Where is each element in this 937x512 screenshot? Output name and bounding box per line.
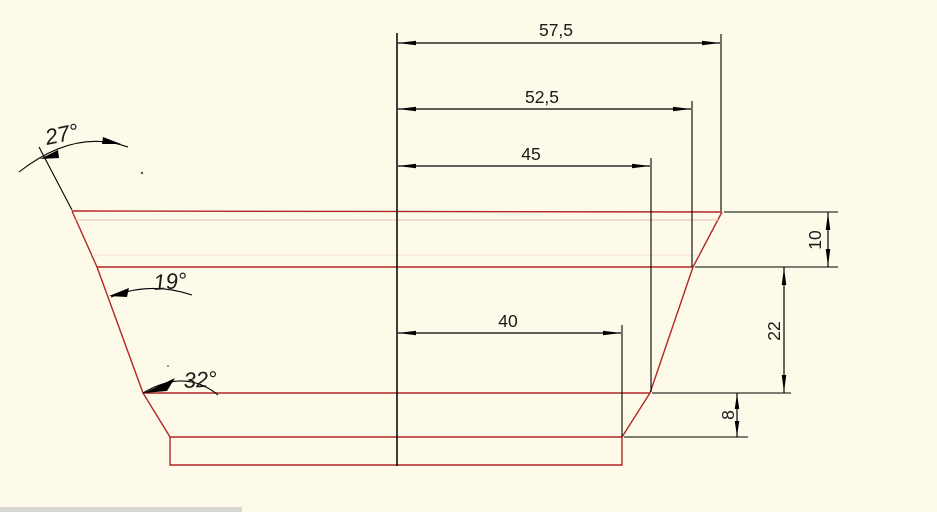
dim-label-52-5: 52,5	[525, 87, 559, 107]
dim-label-40: 40	[498, 311, 518, 331]
cad-drawing-canvas: 57,5 52,5 45 40 10 22	[0, 0, 937, 512]
dim-label-22: 22	[764, 321, 784, 340]
dim-label-57-5: 57,5	[539, 20, 573, 40]
drawing-background	[0, 0, 937, 512]
dim-label-45: 45	[521, 144, 540, 164]
angle-label-19: 19°	[153, 268, 188, 295]
bottom-edge-artifact	[0, 507, 242, 512]
dim-label-8: 8	[718, 410, 738, 420]
dim-label-10: 10	[805, 230, 825, 250]
speck-artifact	[141, 172, 143, 174]
speck-artifact	[167, 365, 169, 367]
angle-label-32: 32°	[183, 366, 218, 393]
